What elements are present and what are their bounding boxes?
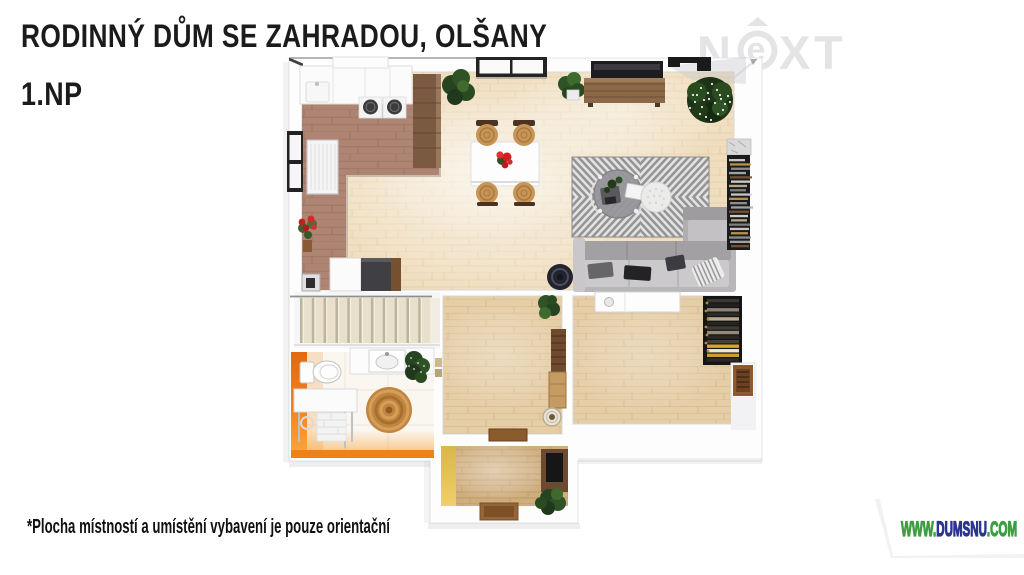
svg-text:T: T [814, 26, 843, 79]
svg-text:RODINNÝ DŮM SE ZAHRADOU, OLŠAN: RODINNÝ DŮM SE ZAHRADOU, OLŠANY [21, 15, 547, 54]
svg-text:*Plocha místností a umístění v: *Plocha místností a umístění vybavení je… [27, 515, 391, 537]
svg-text:WWW.DUMSNU.COM: WWW.DUMSNU.COM [901, 517, 1017, 541]
svg-text:X: X [779, 26, 810, 79]
svg-text:1.NP: 1.NP [21, 77, 82, 113]
